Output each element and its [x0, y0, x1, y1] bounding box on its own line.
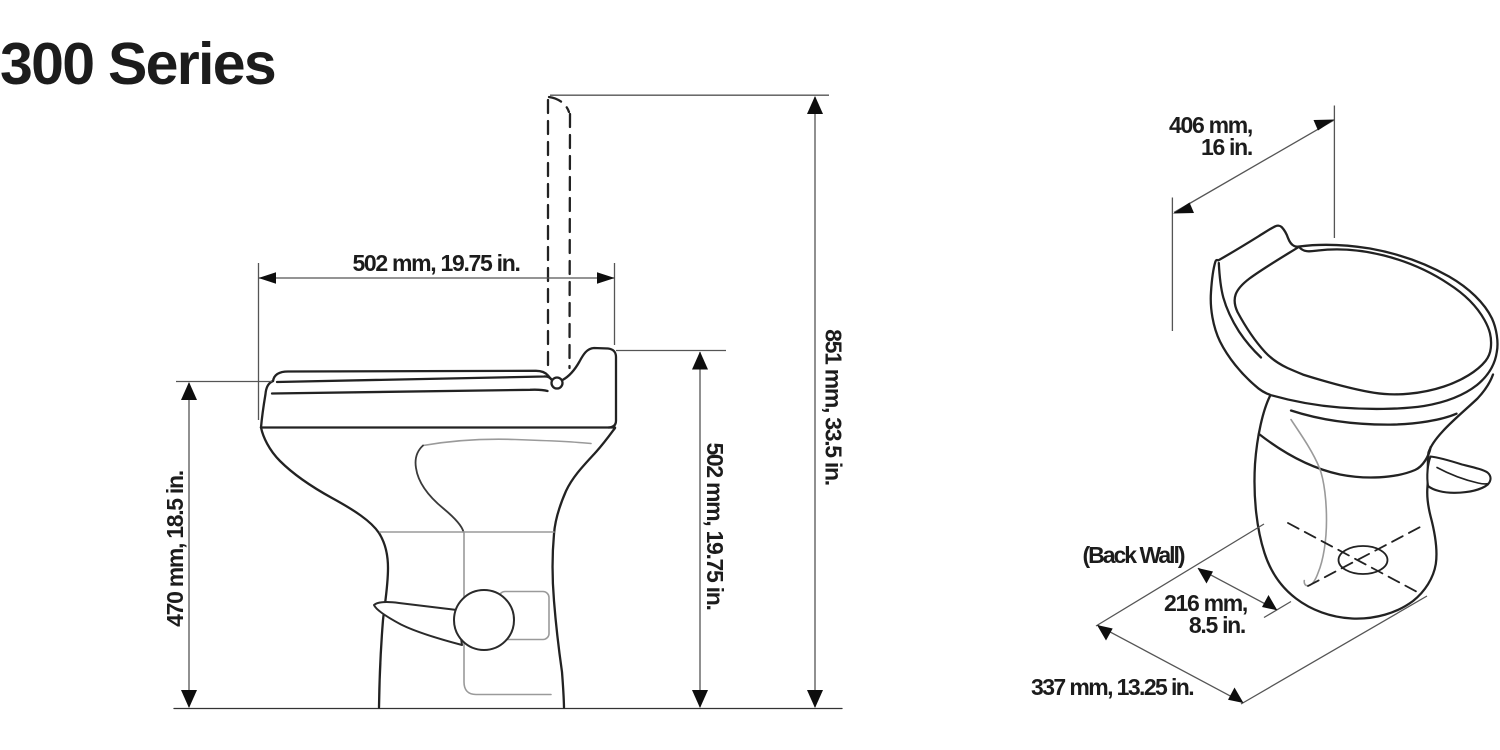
svg-text:337 mm, 13.25 in.: 337 mm, 13.25 in.: [1031, 674, 1193, 700]
svg-text:502 mm, 19.75 in.: 502 mm, 19.75 in.: [702, 442, 728, 609]
svg-text:8.5 in.: 8.5 in.: [1189, 612, 1245, 638]
svg-text:16 in.: 16 in.: [1201, 134, 1252, 160]
svg-text:470 mm, 18.5 in.: 470 mm, 18.5 in.: [162, 471, 188, 627]
svg-text:851 mm, 33.5 in.: 851 mm, 33.5 in.: [821, 329, 847, 485]
svg-text:502 mm, 19.75 in.: 502 mm, 19.75 in.: [352, 250, 519, 276]
svg-text:(Back Wall): (Back Wall): [1082, 542, 1184, 568]
svg-text:300 Series: 300 Series: [0, 31, 275, 97]
